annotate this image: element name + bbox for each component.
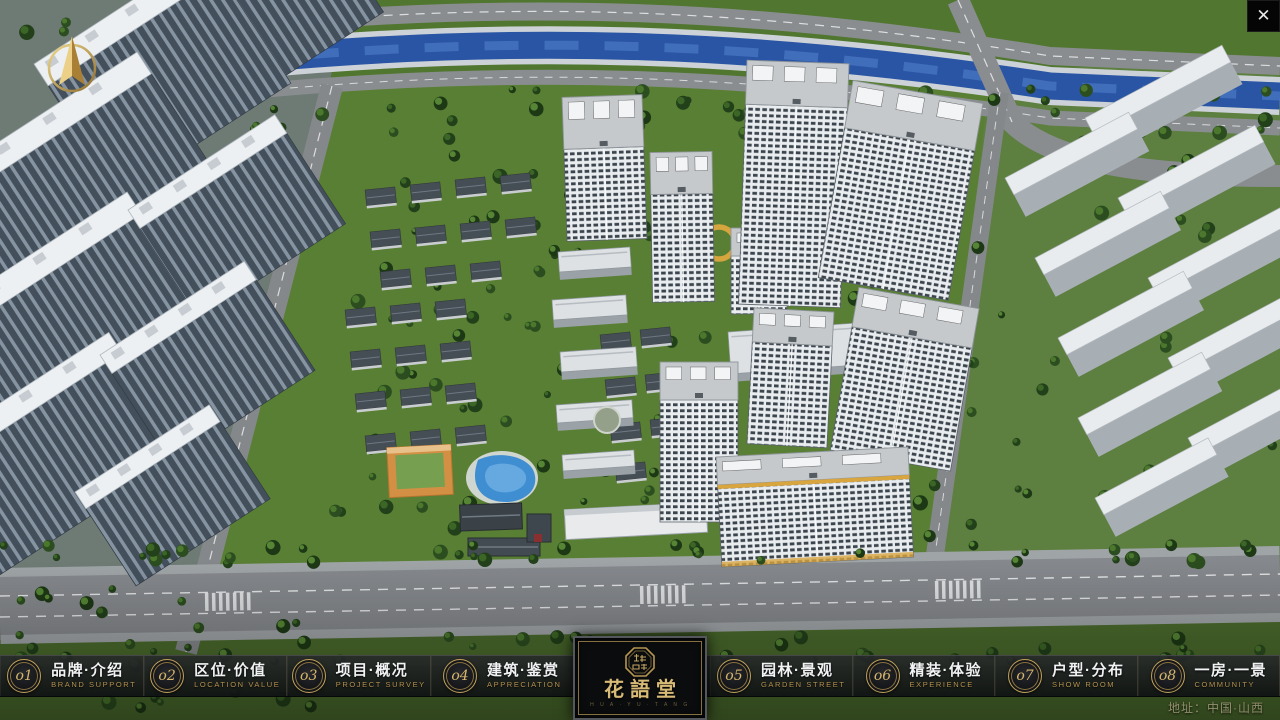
- nav-number-badge: o6: [866, 659, 900, 693]
- nav-label-en: BRAND SUPPORT: [51, 681, 136, 689]
- nav-label-en: EXPERIENCE: [910, 681, 974, 689]
- nav-number-badge: o4: [443, 659, 477, 693]
- aerial-site-render: [0, 0, 1280, 720]
- nav-item-brand[interactable]: o1 品牌·介绍 BRAND SUPPORT: [0, 656, 144, 696]
- nav-item-location[interactable]: o2 区位·价值 LOCATION VALUE: [144, 656, 288, 696]
- nav-label-en: PROJECT SURVEY: [336, 681, 426, 689]
- brand-logo-panel[interactable]: 花語堂 H U A · Y U · T A N G: [573, 636, 707, 720]
- nav-label-zh: 品牌·介绍: [51, 663, 124, 678]
- logo-subtitle: H U A · Y U · T A N G: [590, 702, 690, 708]
- nav-number-badge: o2: [150, 659, 184, 693]
- compass-north-icon: [42, 30, 102, 98]
- nav-label-zh: 园林·景观: [761, 663, 834, 678]
- round-plaza: [594, 407, 620, 433]
- nav-number-badge: o1: [7, 659, 41, 693]
- logo-title: 花語堂: [598, 679, 682, 699]
- nav-label-en: APPRECIATION: [487, 681, 562, 689]
- nav-label-en: GARDEN STREET: [761, 681, 846, 689]
- nav-item-views[interactable]: o8 一房·一景 COMMUNITY: [1138, 656, 1280, 696]
- nav-label-en: COMMUNITY: [1195, 681, 1256, 689]
- nav-label-en: SHOW ROOM: [1052, 681, 1115, 689]
- nav-number-badge: o3: [292, 659, 326, 693]
- pool: [466, 451, 538, 505]
- nav-number-badge: o8: [1151, 659, 1185, 693]
- nav-number-badge: o7: [1008, 659, 1042, 693]
- nav-item-project[interactable]: o3 项目·概况 PROJECT SURVEY: [287, 656, 431, 696]
- nav-group-left: o1 品牌·介绍 BRAND SUPPORT o2 区位·价值 LOCATION…: [0, 656, 574, 696]
- nav-number-badge: o5: [717, 659, 751, 693]
- nav-item-architecture[interactable]: o4 建筑·鉴赏 APPRECIATION: [431, 656, 575, 696]
- nav-group-right: o5 园林·景观 GARDEN STREET o6 精装·体验 EXPERIEN…: [710, 656, 1280, 696]
- nav-label-zh: 户型·分布: [1052, 663, 1125, 678]
- nav-label-zh: 建筑·鉴赏: [487, 663, 560, 678]
- close-button[interactable]: ✕: [1247, 0, 1280, 32]
- nav-item-interior[interactable]: o6 精装·体验 EXPERIENCE: [853, 656, 996, 696]
- nav-label-zh: 项目·概况: [336, 663, 409, 678]
- site-map: [0, 0, 1280, 720]
- nav-item-floorplan[interactable]: o7 户型·分布 SHOW ROOM: [995, 656, 1138, 696]
- close-icon: ✕: [1256, 8, 1270, 25]
- address-text: 地址：中国·山西: [1168, 699, 1264, 716]
- orange-building: [387, 444, 454, 497]
- nav-item-garden[interactable]: o5 园林·景观 GARDEN STREET: [710, 656, 853, 696]
- nav-label-zh: 一房·一景: [1195, 663, 1268, 678]
- seal-emblem-icon: [624, 646, 656, 678]
- nav-label-zh: 区位·价值: [194, 663, 267, 678]
- nav-label-zh: 精装·体验: [910, 663, 983, 678]
- nav-label-en: LOCATION VALUE: [194, 681, 280, 689]
